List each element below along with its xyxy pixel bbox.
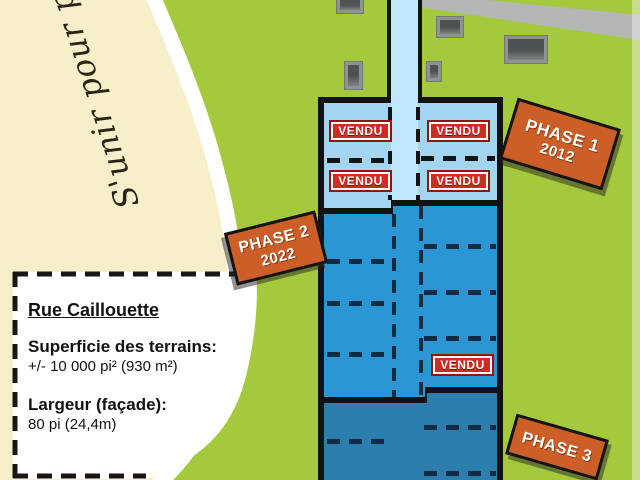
roof-shading (430, 65, 438, 78)
lot-divider (327, 158, 389, 163)
street (391, 0, 418, 103)
house-roof (426, 61, 442, 82)
house-roof (504, 35, 548, 64)
street-name: Rue Caillouette (28, 300, 243, 321)
phase-3-sign-name: PHASE 3 (520, 428, 594, 466)
sold-badge: VENDU (429, 172, 488, 190)
frontage-label: Largeur (façade): (28, 395, 243, 415)
lot-divider (327, 259, 390, 264)
roof-shading (440, 20, 460, 34)
lot-divider (424, 425, 496, 430)
phase-3-area (427, 393, 497, 480)
site-plan: VENDU VENDU VENDU VENDU VENDU PHASE 1 20… (0, 0, 640, 480)
lot-divider (327, 352, 390, 357)
lot-divider (327, 301, 390, 306)
lot-divider (424, 290, 496, 295)
lot-divider (424, 244, 496, 249)
phase-1-street (391, 103, 418, 202)
roof-shading (348, 65, 359, 86)
area-value: +/- 10 000 pi² (930 m²) (28, 358, 243, 375)
image-edge-highlight (632, 0, 640, 480)
lot-divider (424, 336, 496, 341)
house-roof (336, 0, 364, 14)
lot-divider (421, 156, 495, 161)
roof-shading (340, 0, 360, 10)
sold-badge: VENDU (331, 122, 390, 140)
frontage-value: 80 pi (24,4m) (28, 416, 243, 433)
sold-badge: VENDU (433, 356, 492, 374)
sold-badge: VENDU (331, 172, 390, 190)
lot-divider (327, 439, 390, 444)
street-edge (418, 0, 422, 103)
house-roof (436, 16, 464, 38)
lot-divider (424, 471, 496, 476)
street-edge-dashed (416, 107, 420, 200)
info-box: Rue Caillouette Superficie des terrains:… (28, 300, 243, 453)
roof-shading (508, 39, 544, 60)
sold-badge: VENDU (429, 122, 488, 140)
area-label: Superficie des terrains: (28, 337, 243, 357)
house-roof (344, 61, 363, 90)
